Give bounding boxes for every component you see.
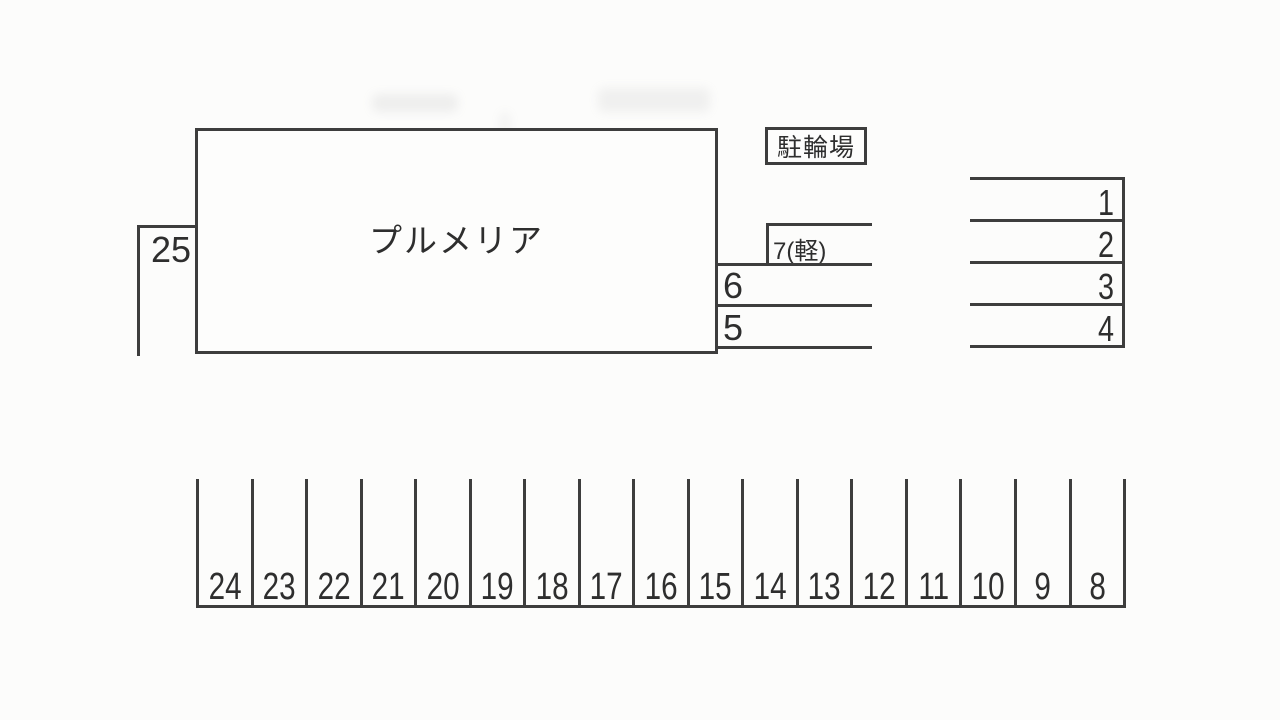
space-21-label: 21 [372, 572, 405, 603]
space-3-label: 3 [1098, 272, 1114, 302]
space-9-label: 9 [1034, 572, 1050, 603]
scan-artifact [598, 88, 710, 112]
space-16-label: 16 [645, 572, 678, 603]
parking-space-11: 11 [905, 479, 960, 605]
parking-space-16: 16 [632, 479, 687, 605]
parking-space-8: 8 [1069, 479, 1127, 605]
parking-space-19: 19 [469, 479, 524, 605]
bottom-parking-row: 24 23 22 21 20 19 18 17 16 15 14 [196, 479, 1126, 608]
space-22-label: 22 [317, 572, 350, 603]
space-23-label: 23 [263, 572, 296, 603]
parking-space-4: 4 [970, 303, 1122, 345]
parking-space-24: 24 [196, 479, 251, 605]
space-8-label: 8 [1089, 572, 1105, 603]
parking-space-10: 10 [959, 479, 1014, 605]
parking-space-7-kei: 7(軽) [766, 223, 872, 266]
parking-space-18: 18 [523, 479, 578, 605]
parking-layout-diagram: プルメリア 25 駐輪場 7(軽) 6 5 1 2 3 4 24 2 [0, 0, 1280, 720]
parking-space-23: 23 [251, 479, 306, 605]
building-plumeria: プルメリア [195, 128, 718, 354]
space-12-label: 12 [863, 572, 896, 603]
bicycle-parking-sign: 駐輪場 [765, 127, 867, 165]
building-label: プルメリア [369, 214, 544, 262]
space-6-label: 6 [723, 268, 743, 304]
space-11-label: 11 [918, 572, 949, 603]
bicycle-parking-label: 駐輪場 [777, 128, 855, 164]
space-19-label: 19 [481, 572, 514, 603]
space-20-label: 20 [426, 572, 459, 603]
space-5-label: 5 [723, 310, 743, 346]
parking-space-12: 12 [850, 479, 905, 605]
space-1-label: 1 [1098, 188, 1114, 218]
space-24-label: 24 [208, 572, 241, 603]
parking-space-2: 2 [970, 219, 1122, 261]
space-10-label: 10 [972, 572, 1005, 603]
space-2-label: 2 [1098, 230, 1114, 260]
space-4-label: 4 [1098, 314, 1114, 344]
parking-space-15: 15 [687, 479, 742, 605]
space-7-label: 7(軽) [773, 239, 826, 265]
parking-space-22: 22 [305, 479, 360, 605]
parking-space-1: 1 [970, 177, 1122, 219]
scan-artifact [372, 94, 458, 112]
parking-space-9: 9 [1014, 479, 1069, 605]
right-parking-column: 1 2 3 4 [970, 177, 1125, 348]
space-18-label: 18 [535, 572, 568, 603]
parking-space-21: 21 [360, 479, 415, 605]
space-14-label: 14 [754, 572, 787, 603]
parking-space-13: 13 [796, 479, 851, 605]
space-13-label: 13 [808, 572, 841, 603]
space-15-label: 15 [699, 572, 732, 603]
space-17-label: 17 [590, 572, 623, 603]
parking-space-3: 3 [970, 261, 1122, 303]
parking-space-17: 17 [578, 479, 633, 605]
space-25-label: 25 [151, 234, 191, 266]
parking-space-20: 20 [414, 479, 469, 605]
parking-space-25: 25 [137, 225, 198, 356]
parking-space-14: 14 [741, 479, 796, 605]
